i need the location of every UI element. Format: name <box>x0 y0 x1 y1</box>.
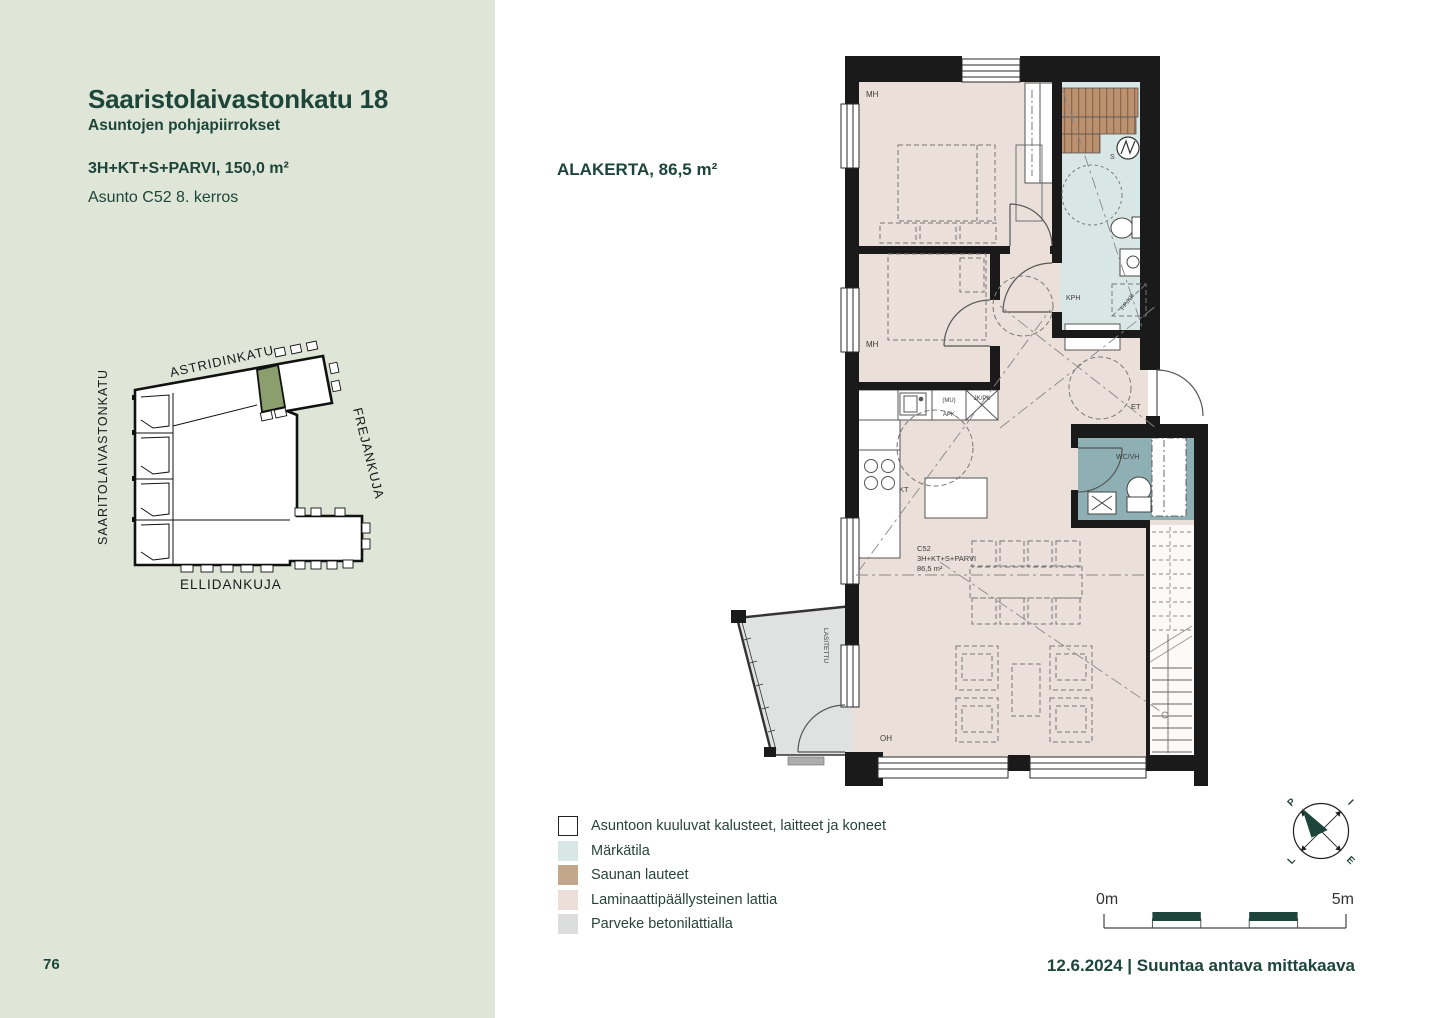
compass-east: I <box>1345 798 1355 808</box>
site-map: ASTRIDINKATU SAARITOLAIVASTONKATU FREJAN… <box>85 333 395 618</box>
sidebar: Saaristolaivastonkatu 18 Asuntojen pohja… <box>0 0 495 1018</box>
unit-area: 86,5 m² <box>917 564 943 573</box>
page-number: 76 <box>43 956 60 973</box>
compass-west: L <box>1286 855 1298 867</box>
scale-start: 0m <box>1096 891 1118 908</box>
street-label-bottom: ELLIDANKUJA <box>180 577 282 592</box>
unit-id: C52 <box>917 544 931 553</box>
page-subtitle: Asuntojen pohjapiirrokset <box>88 117 280 135</box>
street-label-left: SAARITOLAIVASTONKATU <box>96 369 110 545</box>
legend-swatch-balcony <box>558 914 578 934</box>
label-kitchen: KT <box>899 485 909 494</box>
compass-rose: P I L E <box>1283 793 1359 869</box>
label-balcony: LASITETTU <box>822 628 829 663</box>
legend-label: Saunan lauteet <box>591 867 689 883</box>
apartment-type: 3H+KT+S+PARVI, 150,0 m² <box>88 160 289 178</box>
legend-label: Laminaattipäällysteinen lattia <box>591 892 777 908</box>
sauna-heater <box>1117 137 1139 159</box>
label-bathroom: KPH <box>1066 295 1080 302</box>
legend-row: Märkätila <box>558 841 886 861</box>
label-sauna: S <box>1110 154 1115 161</box>
compass-south: E <box>1344 854 1357 867</box>
street-label-right: FREJANKUJA <box>350 406 387 501</box>
compass-north: P <box>1286 796 1299 809</box>
legend-swatch-fixtures <box>558 816 578 836</box>
legend: Asuntoon kuuluvat kalusteet, laitteet ja… <box>558 816 886 939</box>
site-map-building <box>132 341 370 572</box>
legend-row: Saunan lauteet <box>558 865 886 885</box>
legend-swatch-wetroom <box>558 841 578 861</box>
date-scale-note: 12.6.2024 | Suuntaa antava mittakaava <box>1047 956 1355 976</box>
legend-row: Parveke betonilattialla <box>558 914 886 934</box>
legend-label: Parveke betonilattialla <box>591 916 733 932</box>
brochure-page: { "colors": { "sidebar_bg": "#dfe6d8", "… <box>0 0 1440 1018</box>
legend-swatch-laminate <box>558 890 578 910</box>
label-apk: APK <box>943 412 955 418</box>
apartment-unit: Asunto C52 8. kerros <box>88 189 238 207</box>
legend-swatch-sauna <box>558 865 578 885</box>
unit-type: 3H+KT+S+PARVI <box>917 554 976 563</box>
label-bedroom2: MH <box>866 340 879 349</box>
label-jkpk: JK/PK <box>974 396 991 402</box>
label-wc: WC/VH <box>1116 454 1139 461</box>
label-entry: ET <box>1131 402 1141 411</box>
legend-label: Märkätila <box>591 843 650 859</box>
legend-row: Asuntoon kuuluvat kalusteet, laitteet ja… <box>558 816 886 836</box>
label-bedroom1: MH <box>866 90 879 99</box>
floor-title: ALAKERTA, 86,5 m² <box>557 160 717 180</box>
legend-label: Asuntoon kuuluvat kalusteet, laitteet ja… <box>591 818 886 834</box>
label-living: OH <box>880 734 892 743</box>
legend-row: Laminaattipäällysteinen lattia <box>558 890 886 910</box>
floorplan: MH MH S KPH KT ET WC/VH OH LASITETTU (MU… <box>725 50 1215 805</box>
label-mu: (MU) <box>942 398 955 404</box>
scale-end: 5m <box>1332 891 1354 908</box>
page-title: Saaristolaivastonkatu 18 <box>88 84 388 115</box>
scale-bar: 0m 5m <box>1094 888 1356 936</box>
balcony-floor <box>737 606 852 755</box>
